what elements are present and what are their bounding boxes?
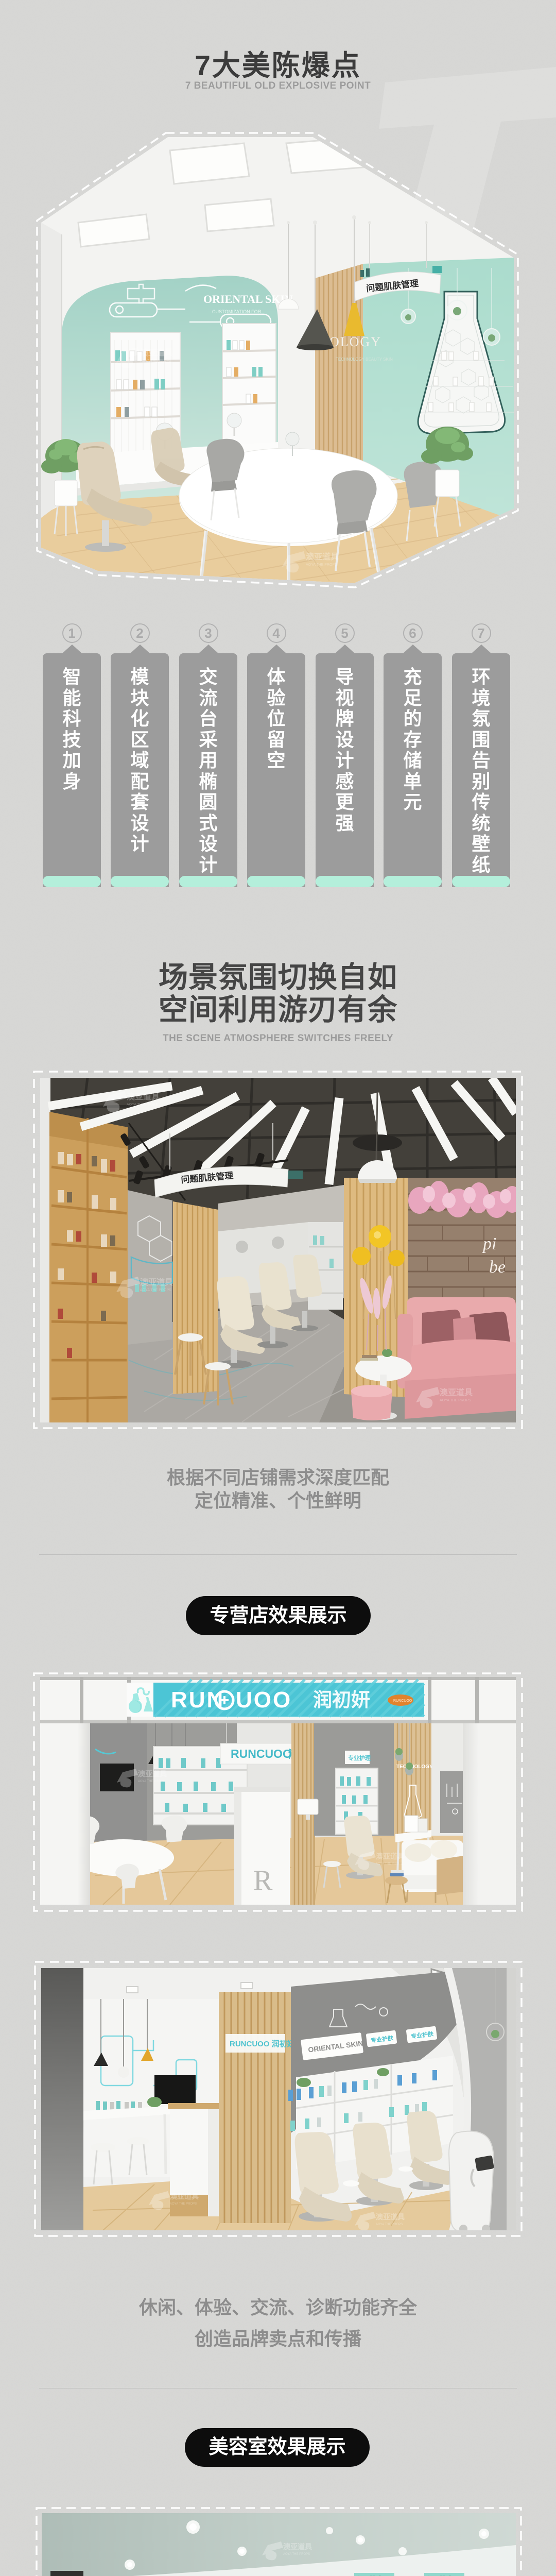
svg-text:TECHNOLOGY BEAUTY SKIN: TECHNOLOGY BEAUTY SKIN — [336, 357, 393, 362]
svg-text:CUSTOMIZATION FOR: CUSTOMIZATION FOR — [212, 309, 262, 314]
svg-text:AOYA THE PROPS: AOYA THE PROPS — [376, 2223, 403, 2226]
svg-text:R: R — [253, 1865, 273, 1896]
svg-text:RUNCUOO: RUNCUOO — [231, 1747, 292, 1760]
svg-text:AOYA THE PROPS: AOYA THE PROPS — [283, 2553, 310, 2556]
svg-text:AOYA THE PROPS: AOYA THE PROPS — [140, 1289, 171, 1292]
svg-text:澳亚道具: 澳亚道具 — [127, 1092, 160, 1101]
svg-text:OLOGY: OLOGY — [329, 334, 381, 349]
svg-text:澳亚道具: 澳亚道具 — [140, 348, 173, 358]
svg-text:专业护理: 专业护理 — [348, 1754, 371, 1761]
svg-text:澳亚道具: 澳亚道具 — [138, 1770, 167, 1778]
svg-text:AOYA THE PROPS: AOYA THE PROPS — [170, 2202, 197, 2206]
svg-text:AOYA THE PROPS: AOYA THE PROPS — [138, 1780, 165, 1783]
svg-text:AOYA THE PROPS: AOYA THE PROPS — [376, 1862, 403, 1866]
svg-text:pi: pi — [482, 1234, 496, 1253]
svg-text:澳亚道具: 澳亚道具 — [440, 1387, 473, 1397]
svg-text:澳亚道具: 澳亚道具 — [376, 1852, 405, 1860]
svg-text:RUNCUOO: RUNCUOO — [393, 1699, 412, 1703]
svg-text:AOYA THE PROPS: AOYA THE PROPS — [440, 1399, 471, 1402]
svg-text:澳亚道具: 澳亚道具 — [376, 2213, 405, 2221]
svg-text:澳亚道具: 澳亚道具 — [283, 2543, 312, 2551]
svg-text:AOYA THE PROPS: AOYA THE PROPS — [140, 359, 171, 363]
svg-text:AOYA THE PROPS: AOYA THE PROPS — [306, 563, 337, 567]
svg-text:润初妍: 润初妍 — [313, 1689, 370, 1710]
svg-text:AOYA THE PROPS: AOYA THE PROPS — [127, 1103, 158, 1107]
svg-text:澳亚道具: 澳亚道具 — [140, 1277, 173, 1287]
svg-text:RUNCUOO 润初妍: RUNCUOO 润初妍 — [230, 2039, 295, 2048]
svg-text:澳亚道具: 澳亚道具 — [170, 2192, 199, 2200]
svg-text:澳亚道具: 澳亚道具 — [306, 552, 339, 562]
svg-text:be: be — [489, 1258, 506, 1277]
svg-text:UOO: UOO — [236, 1687, 292, 1713]
svg-text:TECHNOLOGY: TECHNOLOGY — [396, 1764, 433, 1770]
